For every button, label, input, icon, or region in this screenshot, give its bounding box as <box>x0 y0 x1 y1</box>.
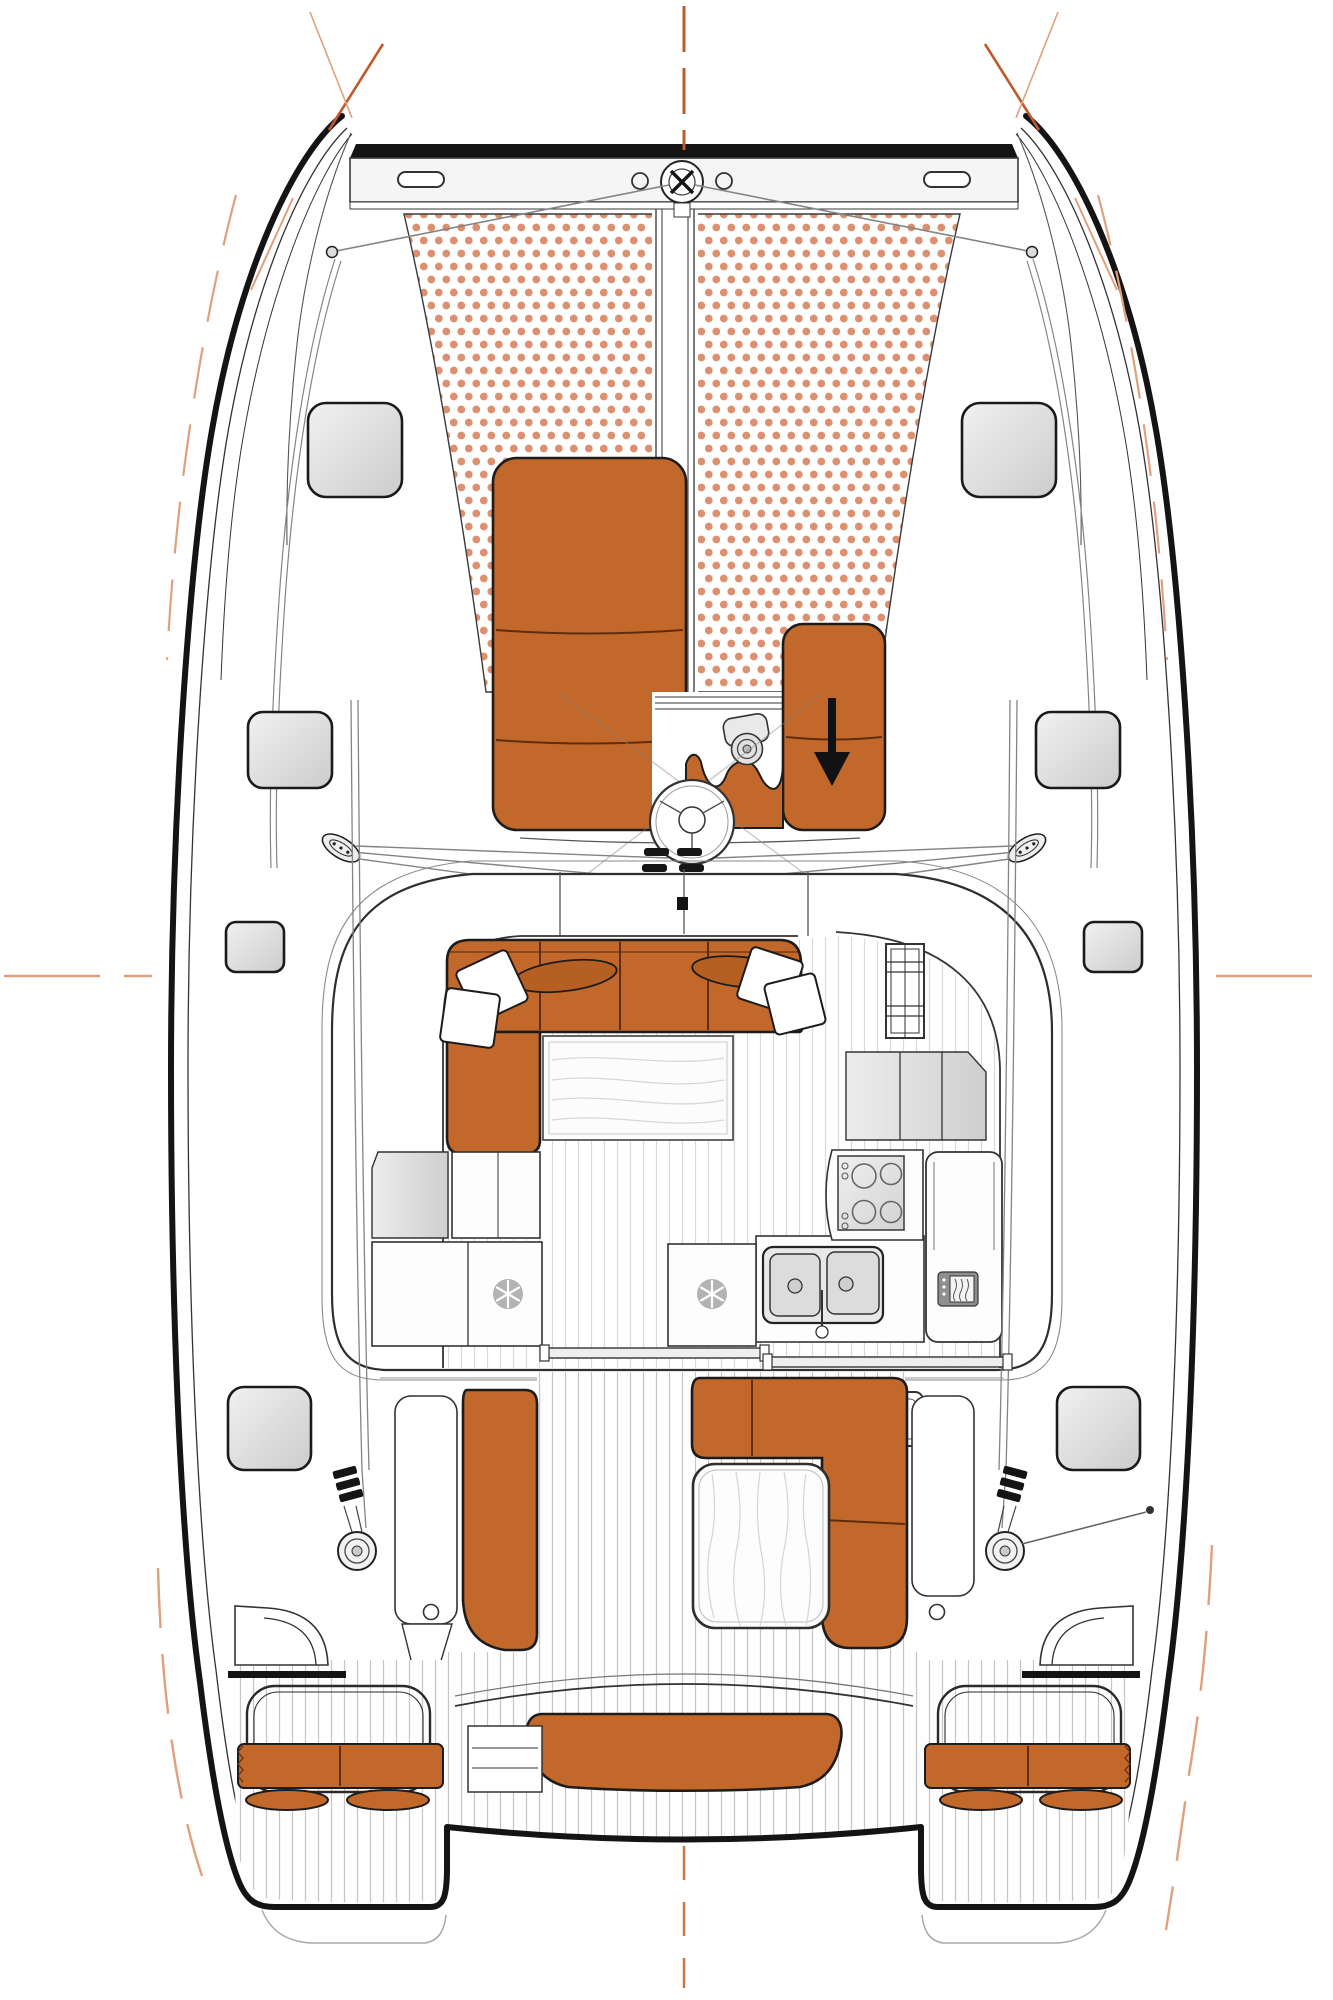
ladder-cabinet <box>886 944 924 1038</box>
bow-cleat-starboard <box>1027 247 1038 258</box>
deck-plan-page <box>0 0 1333 2000</box>
microwave-icon <box>938 1272 978 1306</box>
stove-icon <box>838 1156 904 1230</box>
cockpit-panel-starboard <box>912 1396 974 1596</box>
galley-stove-counter <box>826 1150 923 1240</box>
galley-island <box>668 1236 924 1346</box>
transom-cushion <box>246 1790 328 1810</box>
deck-hatch <box>228 1387 311 1470</box>
transom-step-bar <box>228 1671 346 1678</box>
tall-cabinet <box>926 1152 1002 1342</box>
transom-bench <box>238 1744 443 1788</box>
cockpit-panel-port <box>395 1396 457 1624</box>
coachroof <box>322 861 1062 1380</box>
cockpit-bench-port <box>463 1390 537 1650</box>
deck-hatch <box>1036 712 1120 788</box>
throw-pillow <box>440 988 501 1049</box>
swim-step-port <box>262 1910 446 1943</box>
deck-hatch <box>226 922 284 972</box>
aft-sunbench-center <box>527 1714 842 1791</box>
cabin-front-fitting <box>677 897 688 910</box>
transom-cushion <box>347 1790 429 1810</box>
snowflake-icon <box>697 1279 727 1309</box>
catamaran-deck-plan <box>0 0 1333 2000</box>
transom-cushion <box>1040 1790 1122 1810</box>
snowflake-icon <box>493 1279 523 1309</box>
aft-locker-box <box>468 1726 542 1792</box>
deck-hatch <box>308 403 402 497</box>
cockpit-table <box>693 1464 829 1628</box>
bow-cleat-port <box>327 247 338 258</box>
starboard-cabinet-row <box>846 1052 986 1140</box>
transom-bench <box>925 1744 1130 1788</box>
transom-step-bar <box>1022 1671 1140 1678</box>
galley-port-cabinets <box>372 1152 542 1346</box>
beam-slot-port <box>398 172 444 187</box>
deck-hatch <box>962 403 1056 497</box>
sofa-chaise <box>447 1032 540 1154</box>
throw-pillow <box>763 972 826 1035</box>
swim-step-starboard <box>922 1910 1106 1943</box>
deck-hatch <box>1084 922 1142 972</box>
deck-hatch <box>1057 1387 1140 1470</box>
saloon-table <box>543 1036 733 1140</box>
deck-cleat <box>424 1605 439 1620</box>
beam-slot-starboard <box>924 172 970 187</box>
deck-cleat <box>930 1605 945 1620</box>
transom-cushion <box>940 1790 1022 1810</box>
deck-hatch <box>248 712 332 788</box>
